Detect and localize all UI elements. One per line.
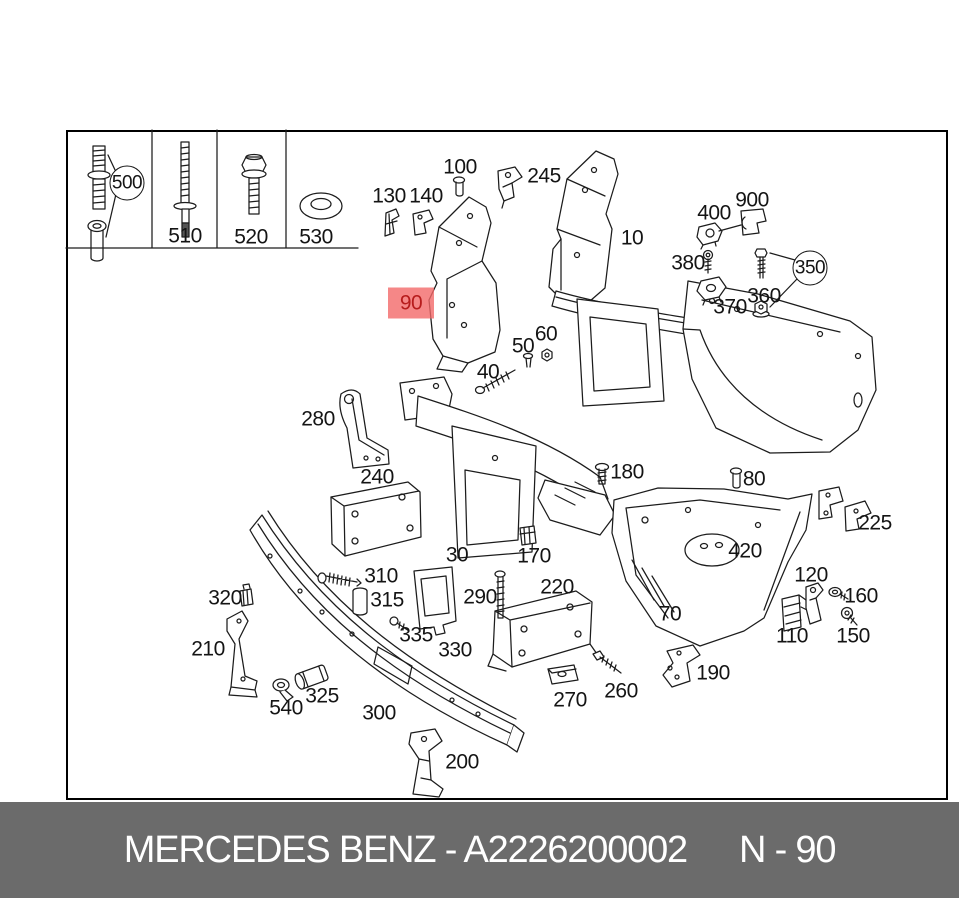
callout-30[interactable]: 30 bbox=[446, 545, 468, 566]
callout-10[interactable]: 10 bbox=[621, 228, 643, 249]
callout-layer: 5005105205301002451301401040090038035036… bbox=[0, 0, 959, 898]
callout-180[interactable]: 180 bbox=[610, 462, 644, 483]
callout-335[interactable]: 335 bbox=[399, 625, 433, 646]
callout-80[interactable]: 80 bbox=[743, 469, 765, 490]
callout-510[interactable]: 510 bbox=[168, 226, 202, 247]
callout-520[interactable]: 520 bbox=[234, 227, 268, 248]
callout-130[interactable]: 130 bbox=[372, 186, 406, 207]
callout-120[interactable]: 120 bbox=[794, 565, 828, 586]
callout-110[interactable]: 110 bbox=[776, 626, 808, 647]
footer-brand-part-number: MERCEDES BENZ - A2226200002 bbox=[124, 829, 687, 872]
callout-500[interactable]: 500 bbox=[110, 166, 145, 201]
callout-900[interactable]: 900 bbox=[735, 190, 769, 211]
callout-260[interactable]: 260 bbox=[604, 681, 638, 702]
callout-400[interactable]: 400 bbox=[697, 203, 731, 224]
callout-370[interactable]: 370 bbox=[713, 297, 747, 318]
callout-150[interactable]: 150 bbox=[836, 626, 870, 647]
callout-360[interactable]: 360 bbox=[747, 286, 781, 307]
callout-320[interactable]: 320 bbox=[208, 588, 242, 609]
footer-diagram-ref: N - 90 bbox=[739, 829, 835, 872]
callout-540[interactable]: 540 bbox=[269, 698, 303, 719]
callout-170[interactable]: 170 bbox=[517, 546, 551, 567]
callout-350[interactable]: 350 bbox=[793, 251, 828, 286]
callout-315[interactable]: 315 bbox=[370, 590, 404, 611]
callout-240[interactable]: 240 bbox=[360, 467, 394, 488]
callout-325[interactable]: 325 bbox=[305, 686, 339, 707]
callout-245[interactable]: 245 bbox=[527, 166, 561, 187]
callout-220[interactable]: 220 bbox=[540, 577, 574, 598]
callout-280[interactable]: 280 bbox=[301, 409, 335, 430]
parts-catalog-page: { "page": { "background": "#ffffff" }, "… bbox=[0, 0, 959, 898]
callout-270[interactable]: 270 bbox=[553, 690, 587, 711]
callout-100[interactable]: 100 bbox=[443, 157, 477, 178]
callout-330[interactable]: 330 bbox=[438, 640, 472, 661]
callout-60[interactable]: 60 bbox=[535, 324, 557, 345]
callout-290[interactable]: 290 bbox=[463, 587, 497, 608]
callout-190[interactable]: 190 bbox=[696, 663, 730, 684]
callout-160[interactable]: 160 bbox=[844, 586, 878, 607]
callout-90[interactable]: 90 bbox=[388, 288, 434, 319]
callout-530[interactable]: 530 bbox=[299, 227, 333, 248]
callout-70[interactable]: 70 bbox=[659, 604, 681, 625]
callout-310[interactable]: 310 bbox=[364, 566, 398, 587]
callout-140[interactable]: 140 bbox=[409, 186, 443, 207]
footer-caption-bar: MERCEDES BENZ - A2226200002 N - 90 bbox=[0, 802, 959, 898]
callout-210[interactable]: 210 bbox=[191, 639, 225, 660]
callout-200[interactable]: 200 bbox=[445, 752, 479, 773]
callout-420[interactable]: 420 bbox=[728, 541, 762, 562]
callout-225[interactable]: 225 bbox=[858, 513, 892, 534]
callout-50[interactable]: 50 bbox=[512, 336, 534, 357]
callout-380[interactable]: 380 bbox=[671, 253, 705, 274]
callout-300[interactable]: 300 bbox=[362, 703, 396, 724]
callout-40[interactable]: 40 bbox=[477, 362, 499, 383]
